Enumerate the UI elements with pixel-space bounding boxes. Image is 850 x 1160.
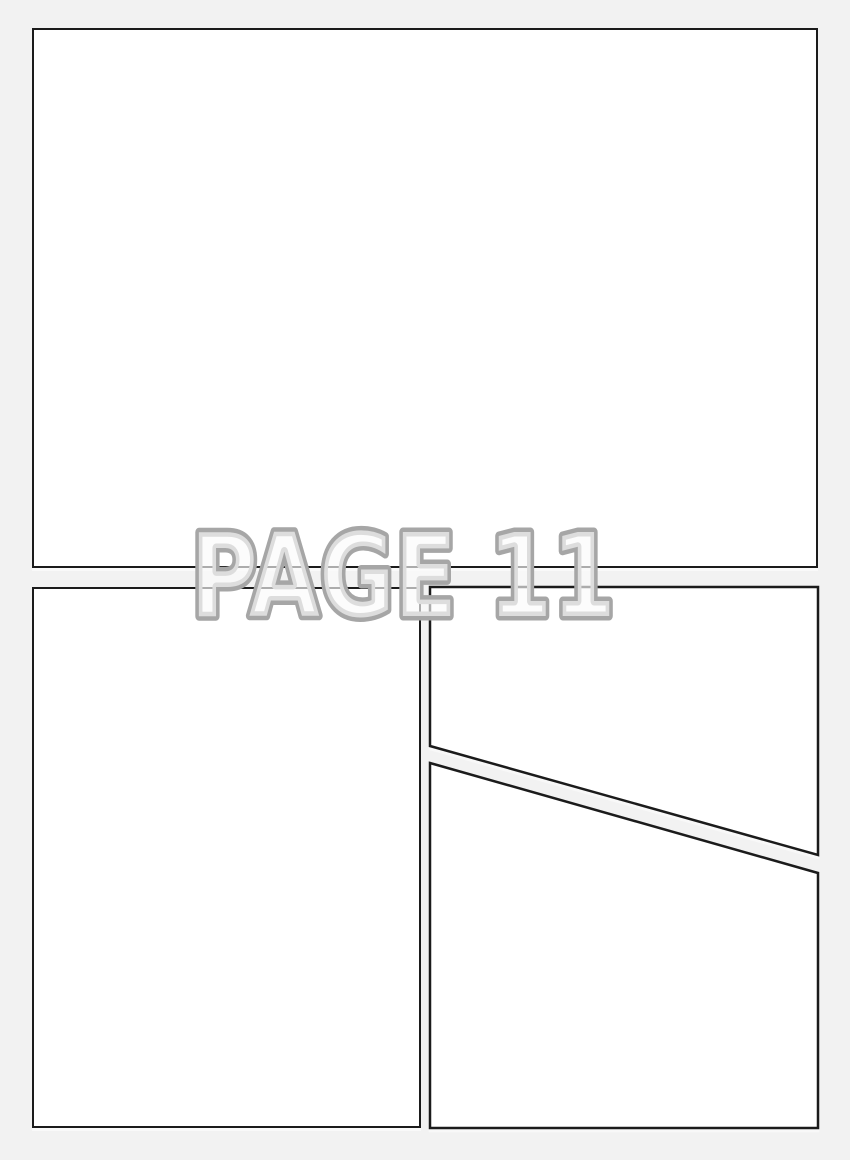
panel-top [32, 28, 818, 568]
bottom-right-panel-group [430, 587, 818, 1128]
comic-page-template: PAGE 11 [0, 0, 850, 1160]
panel-bottom-left [32, 587, 421, 1128]
